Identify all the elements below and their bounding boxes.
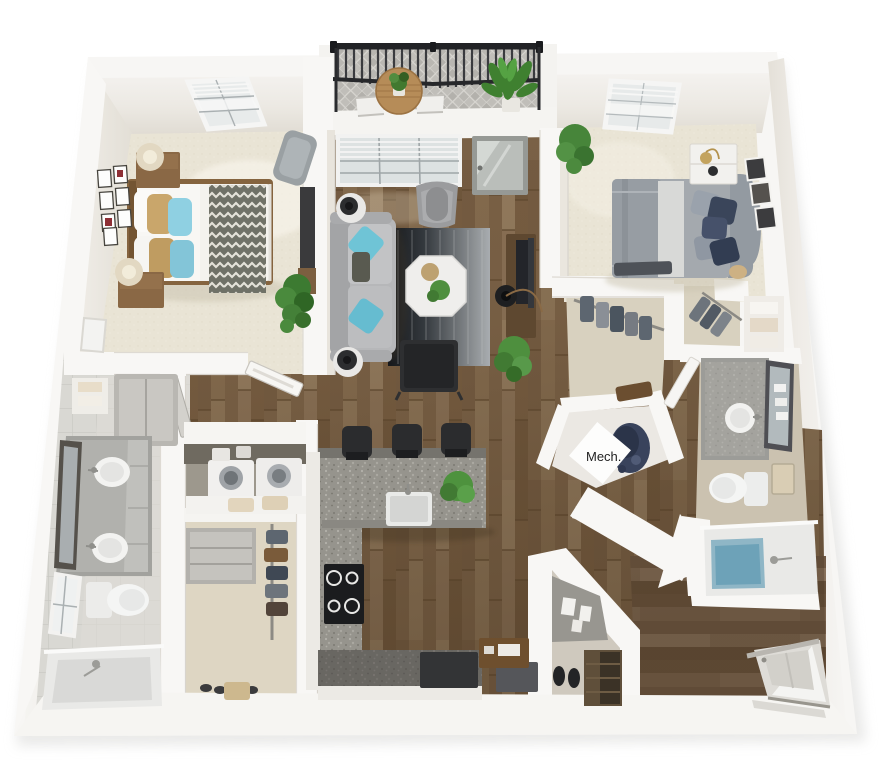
svg-text:Mech.: Mech. — [586, 449, 621, 464]
